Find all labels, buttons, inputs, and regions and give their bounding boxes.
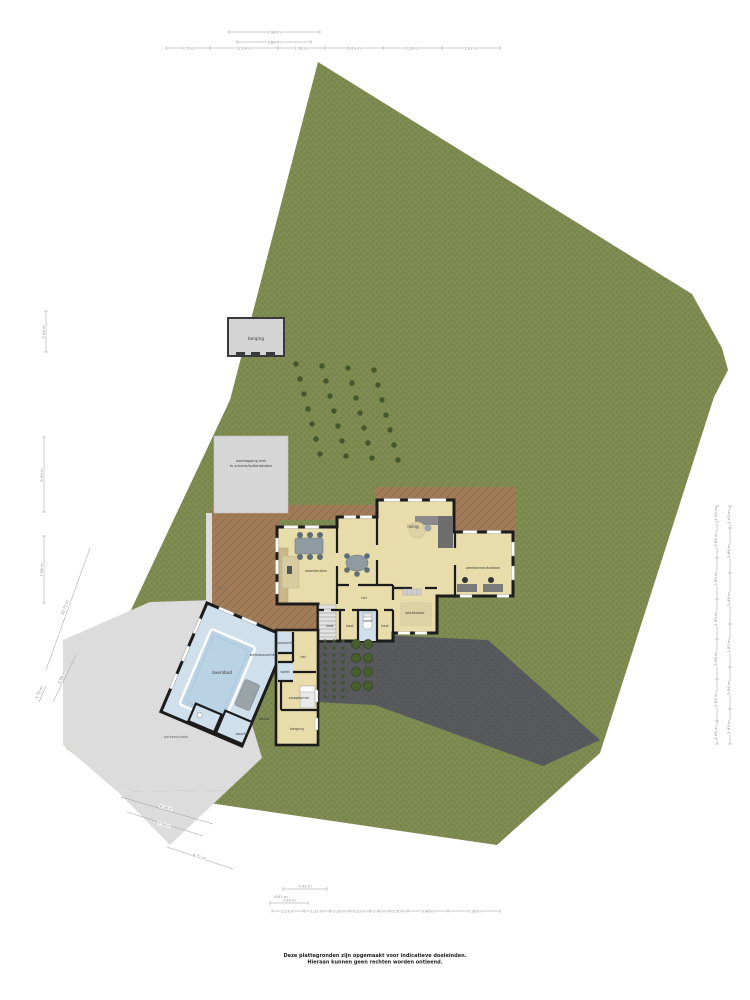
dim-top-chain-5: 1.92 m: [464, 46, 478, 51]
dim-bottom-chain-3: 1.23 m: [353, 909, 367, 914]
dim-right-b-0: 1.43 m: [726, 510, 731, 524]
dim-left-diag-0: 10.71 m: [60, 599, 70, 616]
kitchen-label: woonkeuken: [305, 569, 327, 573]
canopy-label-line1: overkapping met: [236, 459, 266, 463]
dimensions-right: 1.05 m 3.85 m 2.93 m 1.93 m 3.06 m 2.87 …: [713, 506, 732, 744]
dim-right-a-0: 1.05 m: [713, 507, 718, 521]
dim-left-0: 3.08 m: [41, 325, 46, 339]
dim-top-chain-2: 1.38 m: [294, 46, 308, 51]
dim-right-b-1: 3.66 m: [726, 544, 731, 558]
dim-right-b-4: 3.06 m: [726, 681, 731, 695]
wellness-label: wellnessruimte: [250, 653, 277, 657]
disclaimer-line1: Deze plattegronden zijn opgemaakt voor i…: [283, 953, 466, 959]
parking-note-label: parkeerplaats: [164, 735, 188, 739]
pool-toilet-label: toilet: [281, 670, 291, 674]
pool-label: zwembad: [212, 670, 233, 675]
pool-storage-label: berging: [290, 727, 303, 731]
shed-label: berging: [248, 336, 264, 341]
dimensions-bottom: 4.42 m 8.01 m 3.29 m 2.21 m 1.32 m 1.20 …: [270, 884, 500, 914]
closet3-label: kast: [381, 624, 389, 628]
dim-right-a-2: 2.93 m: [713, 572, 718, 586]
dim-bottom-chain-4: 1.40 m: [373, 909, 387, 914]
disclaimer-line2: Hieraan kunnen geen rechten worden ontle…: [307, 960, 442, 966]
canopy-label-line2: tv scherm/buitenkeuken: [230, 464, 272, 468]
dim-right-a-5: 2.87 m: [713, 693, 718, 707]
dimensions-top: 7.98 m 3.60 m 4.71 m 12.04 m 1.38 m 6.09…: [166, 30, 500, 51]
canopy-building: [214, 436, 288, 513]
dim-top-chain-0: 4.71 m: [181, 46, 195, 51]
dim-left-diag-2: 1.35 m: [33, 685, 43, 699]
dim-right-a-6: 1.43 m: [713, 726, 718, 740]
site-plan: berging overkapping met tv scherm/buiten…: [0, 0, 750, 1000]
dim-right-b-5: 1.93 m: [726, 720, 731, 734]
path-triangle: [118, 790, 228, 845]
dim-top-upper-1: 3.60 m: [267, 40, 281, 45]
dim-bottom-chain-5: 1.50 m: [392, 909, 406, 914]
living-label: living: [407, 524, 419, 529]
dim-right-a-1: 3.85 m: [713, 533, 718, 547]
dim-bottom-chain-0: 2.21 m: [281, 909, 295, 914]
toilet-label: toilet: [364, 619, 374, 623]
office-label: werkkamer/kantoor: [466, 566, 501, 570]
closet2-label: kast: [346, 624, 354, 628]
dim-top-chain-4: 7.28 m: [405, 46, 419, 51]
dim-bottom-chain-7: 7.16 m: [467, 909, 481, 914]
laundry-label: wasruimte: [276, 641, 294, 645]
dim-right-b-2: 5.48 m: [726, 592, 731, 606]
closet1-label: kast: [326, 624, 334, 628]
study-label: werkkamer: [405, 611, 425, 615]
hall-label: hal: [361, 596, 366, 600]
dim-bottom-chain-2: 1.20 m: [333, 909, 347, 914]
dining-table: [295, 538, 323, 554]
dim-bottom-row-2: 3.29 m: [282, 898, 296, 903]
dim-bottom-chain-1: 1.32 m: [310, 909, 324, 914]
site-plan-canvas: berging overkapping met tv scherm/buiten…: [0, 0, 750, 1000]
dim-right-a-3: 1.93 m: [713, 612, 718, 626]
bedroom-label: slaapkamer: [289, 696, 310, 700]
dim-bottom-chain-6: 3.46 m: [421, 909, 435, 914]
dim-left-2: 7.56 m: [39, 563, 44, 577]
dim-top-chain-3: 6.09 m: [347, 46, 361, 51]
dim-left-1: 8.00 m: [39, 468, 44, 482]
dim-right-a-4: 3.06 m: [713, 652, 718, 666]
dim-bl-2: 6.71 m: [192, 852, 207, 861]
shower-label: douche: [236, 732, 249, 736]
disclaimer: Deze plattegronden zijn opgemaakt voor i…: [283, 953, 466, 966]
dim-top-chain-1: 12.04 m: [236, 46, 252, 51]
dim-right-b-3: 2.87 m: [726, 639, 731, 653]
dim-bottom-row-0: 4.42 m: [298, 884, 312, 889]
driveway-note-label: oprit: [218, 586, 227, 590]
pool-hall-label: hal: [300, 655, 305, 659]
dim-top-upper-0: 7.98 m: [267, 30, 281, 35]
sauna-label: sauna: [259, 717, 270, 721]
